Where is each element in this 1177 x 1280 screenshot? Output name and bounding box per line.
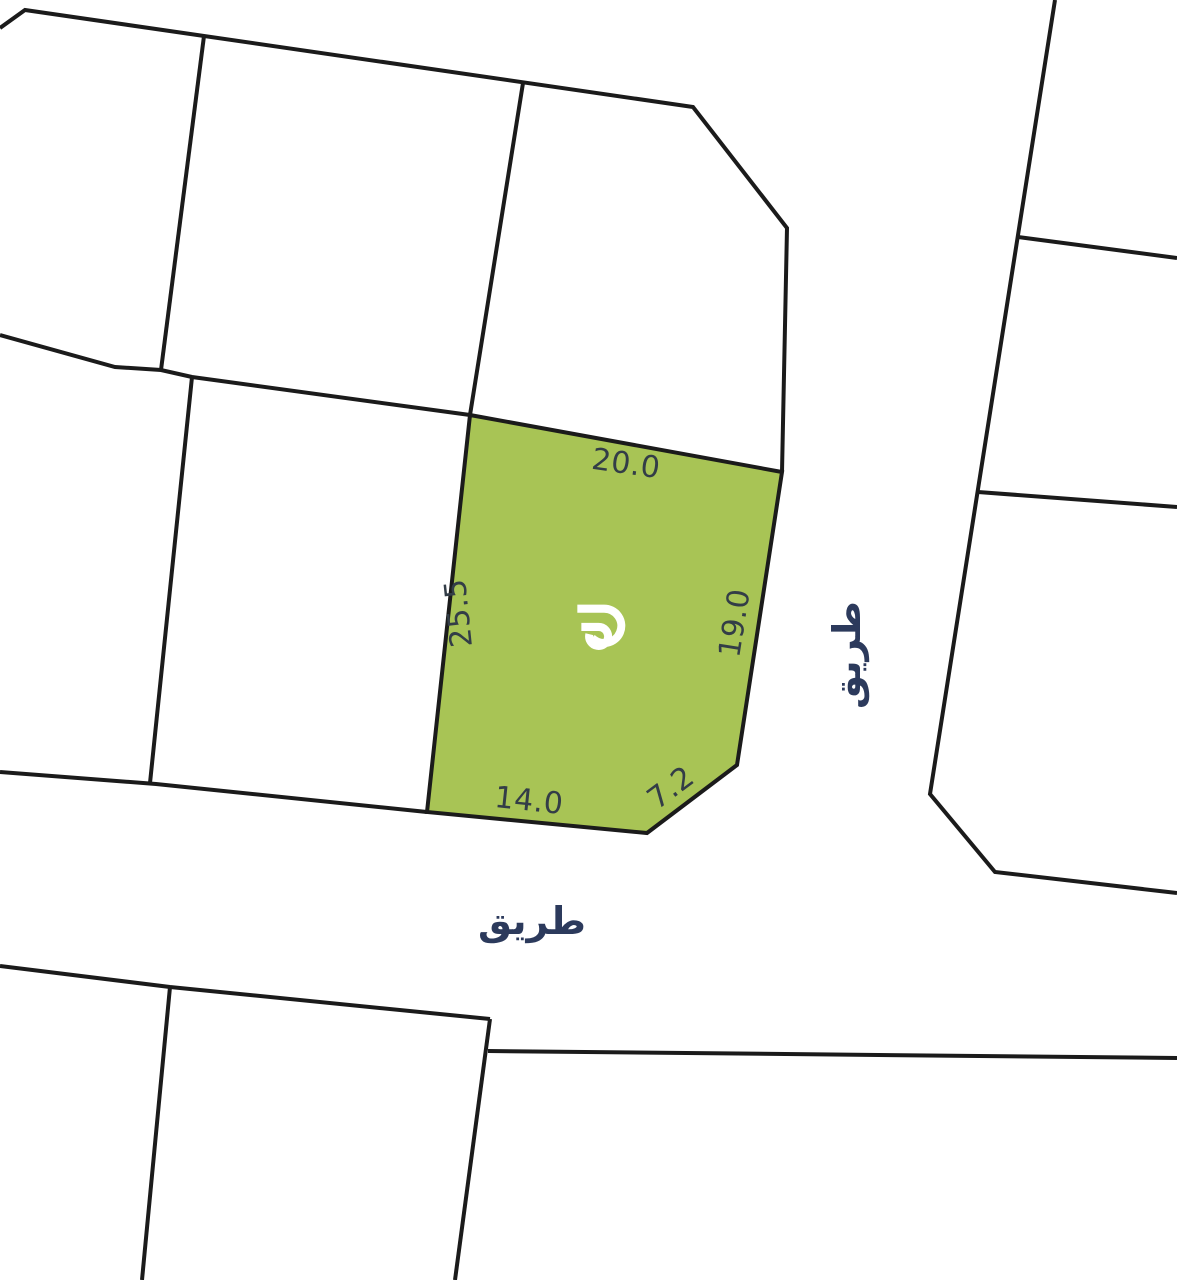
cadastral-map: 20.0 25.5 19.0 14.0 7.2 طريق طريق (0, 0, 1177, 1280)
southwest-block-east-edge (455, 1019, 490, 1280)
west-parcel-divider (150, 377, 192, 783)
road-south-lower-edge (0, 966, 490, 1019)
mid-west-boundary (0, 335, 470, 415)
north-parcel-divider-1 (161, 36, 204, 370)
southwest-parcel-divider (142, 987, 170, 1280)
east-block-west-edge (930, 0, 1177, 893)
road-south-upper-edge (0, 772, 427, 812)
east-parcel-divider-1 (1018, 237, 1177, 258)
parcel-map-svg (0, 0, 1177, 1280)
southeast-block-top-edge (488, 1051, 1177, 1058)
north-parcel-divider-2 (470, 83, 523, 415)
east-parcel-divider-2 (978, 492, 1177, 507)
selected-plot-polygon[interactable] (427, 415, 782, 833)
